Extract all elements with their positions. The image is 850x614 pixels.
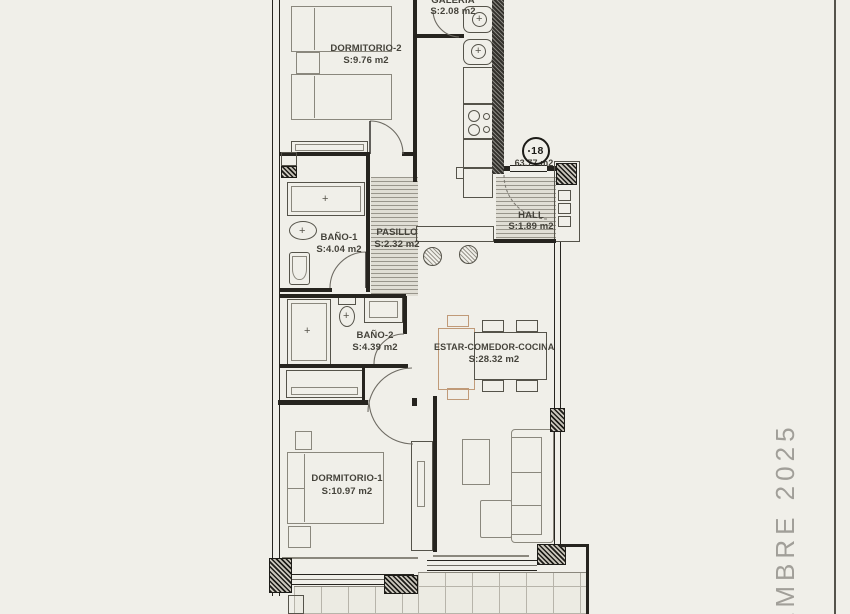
bar-stool-icon [459, 245, 478, 264]
nightstand-icon [288, 526, 311, 548]
sofa-cushion-line [512, 472, 541, 473]
bano2-top-wall [280, 294, 406, 298]
hall-bottom-wall [494, 239, 556, 243]
bano2-bottom-wall [280, 364, 408, 368]
bano1-right-wall [366, 156, 370, 292]
sheet-frame-line [834, 0, 836, 614]
room-label-dormitorio1: DORMITORIO-1 [287, 474, 407, 484]
room-label-dormitorio2: DORMITORIO-2 [306, 44, 426, 54]
door-jamb [412, 398, 417, 406]
door-arc-vestibule [368, 368, 412, 412]
drain-cross: + [304, 326, 310, 337]
pier [537, 544, 566, 565]
dorm1-estar-divider [433, 396, 437, 552]
vanity-basin [369, 301, 398, 318]
window [427, 560, 537, 571]
chair-icon [447, 388, 469, 400]
pier [550, 408, 565, 432]
exterior-wall-right [554, 242, 561, 548]
room-label-hall: HALL [481, 211, 581, 221]
galeria-wall [414, 34, 464, 38]
sofa-cushion-line [512, 505, 541, 506]
terrace-tiles [418, 572, 586, 614]
toilet-bowl [292, 256, 307, 280]
pier [281, 166, 297, 178]
chair-icon [447, 315, 469, 327]
area-label-hall: S:1.89 m2 [481, 222, 581, 232]
unit-number-dot [528, 150, 530, 152]
chair-icon [482, 380, 504, 392]
burner-icon [468, 110, 480, 122]
tap-cross: + [343, 311, 349, 322]
area-label-galeria: S:2.08 m2 [393, 7, 513, 17]
wardrobe-door-line [295, 144, 364, 151]
area-label-dormitorio1: S:10.97 m2 [287, 487, 407, 497]
unit-number-badge: 18 [522, 137, 550, 165]
dryer-cross: + [475, 46, 481, 57]
burner-icon [468, 124, 480, 136]
door-jamb [402, 152, 417, 156]
kitchen-exterior-wall [492, 0, 504, 174]
chair-icon [482, 320, 504, 332]
toilet-tank [338, 297, 356, 305]
bar-stool-icon [423, 247, 442, 266]
closet-door-line [291, 387, 358, 395]
burner-icon [483, 113, 490, 120]
door-arc-dormitorio1 [369, 400, 413, 444]
area-label-pasillo: S:2.32 m2 [347, 240, 447, 250]
room-label-pasillo: PASILLO [347, 228, 447, 238]
kitchen-counter [463, 67, 493, 104]
nightstand-icon [295, 431, 312, 450]
pillow-line [314, 76, 315, 118]
burner-icon [483, 126, 490, 133]
door-arc-bano1 [330, 252, 366, 288]
window-sill-line [282, 557, 418, 559]
closet-side-wall [362, 368, 365, 400]
wardrobe-handle [417, 461, 425, 507]
kitchen-sink-unit [463, 168, 493, 198]
terrace-wall [560, 544, 589, 547]
room-label-galeria: GALERIA [393, 0, 513, 6]
pier [269, 558, 292, 593]
area-label-bano2: S:4.39 m2 [325, 343, 425, 353]
sofa-seat [511, 437, 542, 535]
area-label-dormitorio2: S:9.76 m2 [306, 56, 426, 66]
pier [384, 575, 418, 594]
drain-cross: + [322, 194, 328, 205]
exterior-wall-left [272, 0, 280, 596]
bed-icon [291, 74, 392, 120]
date-text: EMBRE 2025 [770, 422, 801, 614]
chair-icon [516, 320, 538, 332]
bano1-bottom-wall [280, 288, 332, 292]
coffee-table-icon [462, 439, 490, 485]
terrace-column [288, 595, 304, 614]
dorm1-top-wall [278, 400, 368, 405]
area-label-estar: S:28.32 m2 [434, 355, 554, 365]
utility-shaft [281, 152, 297, 166]
room-label-bano2: BAÑO-2 [325, 331, 425, 341]
terrace-wall [586, 546, 589, 614]
shelf-box [558, 190, 571, 201]
unit-number: 18 [531, 145, 544, 157]
door-arc-dormitorio2 [370, 121, 403, 154]
bano2-right-wall [403, 296, 407, 334]
room-label-estar: ESTAR-COMEDOR-COCINA [434, 343, 554, 352]
chair-icon [516, 380, 538, 392]
window-sill-line [433, 555, 529, 557]
floor-plan: + + + + + + [0, 0, 850, 614]
sofa-chaise [480, 500, 512, 538]
kitchen-counter-end [456, 167, 464, 179]
